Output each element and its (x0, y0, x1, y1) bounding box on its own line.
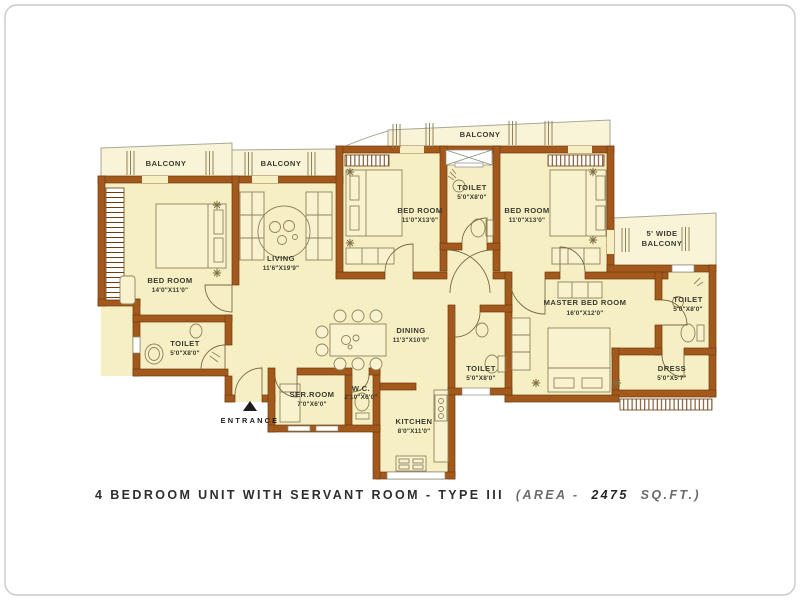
size-dining: 11'3"X10'0" (393, 337, 430, 344)
floor-plan-page: BALCONY BALCONY BALCONY 5' WIDE BALCONY … (0, 0, 800, 600)
label-master-bedroom: MASTER BED ROOM (544, 298, 627, 307)
label-kitchen: KITCHEN (396, 417, 433, 426)
label-bedroom-right: BED ROOM (504, 206, 549, 215)
size-bedroom-right: 11'0"X13'0" (509, 217, 546, 224)
floor-plan-drawing: BALCONY BALCONY BALCONY 5' WIDE BALCONY … (0, 0, 800, 600)
size-master-bedroom: 16'0"X12'0" (567, 310, 604, 317)
label-balcony-right-1: 5' WIDE (646, 229, 677, 238)
size-toilet-right: 5'0"X8'0" (673, 306, 702, 313)
label-bedroom-mid: BED ROOM (397, 206, 442, 215)
size-wc: 2'10"X6'0" (344, 394, 377, 401)
bed-icon (550, 170, 606, 264)
label-living: LIVING (267, 254, 295, 263)
label-dining: DINING (396, 326, 425, 335)
bed-icon (156, 204, 226, 268)
entrance-arrow-icon (243, 401, 257, 411)
plan-caption: 4 BEDROOM UNIT WITH SERVANT ROOM - TYPE … (95, 488, 701, 502)
label-toilet-right: TOILET (673, 295, 703, 304)
size-toilet-mid: 5'0"X8'0" (466, 375, 495, 382)
label-bedroom-left: BED ROOM (147, 276, 192, 285)
entrance-label: ENTRANCE (221, 416, 280, 425)
size-living: 11'6"X19'9" (263, 265, 300, 272)
size-bedroom-mid: 11'0"X13'0" (402, 217, 439, 224)
label-balcony-left: BALCONY (146, 159, 187, 168)
label-toilet-mid: TOILET (466, 364, 496, 373)
armchair-icon (120, 276, 135, 304)
grill-hatch-dress (620, 399, 712, 410)
size-toilet-top: 5'0"X8'0" (457, 194, 486, 201)
label-balcony-right-2: BALCONY (642, 239, 683, 248)
caption-area-prefix: (AREA - (516, 488, 580, 502)
caption-main: 4 BEDROOM UNIT WITH SERVANT ROOM - TYPE … (95, 488, 504, 502)
size-dress: 5'0"X5'7" (657, 375, 686, 382)
label-servant-room: SER.ROOM (290, 390, 335, 399)
label-balcony-top: BALCONY (460, 130, 501, 139)
caption-area-suffix: SQ.FT.) (641, 488, 701, 502)
label-balcony-left2: BALCONY (261, 159, 302, 168)
size-bedroom-left: 14'0"X11'0" (152, 287, 189, 294)
size-servant-room: 7'0"X6'0" (297, 401, 326, 408)
label-toilet-left: TOILET (170, 339, 200, 348)
size-toilet-left: 5'0"X8'0" (170, 350, 199, 357)
grill-hatch-bedright (548, 155, 604, 166)
grill-hatch-bedmid (345, 155, 389, 166)
label-toilet-top: TOILET (457, 183, 487, 192)
label-wc: W.C. (352, 384, 370, 393)
label-dress: DRESS (658, 364, 686, 373)
bed-icon (346, 170, 402, 264)
caption-area-value: 2475 (591, 488, 628, 502)
size-kitchen: 8'0"X11'0" (398, 428, 431, 435)
shaft-box (446, 150, 492, 167)
